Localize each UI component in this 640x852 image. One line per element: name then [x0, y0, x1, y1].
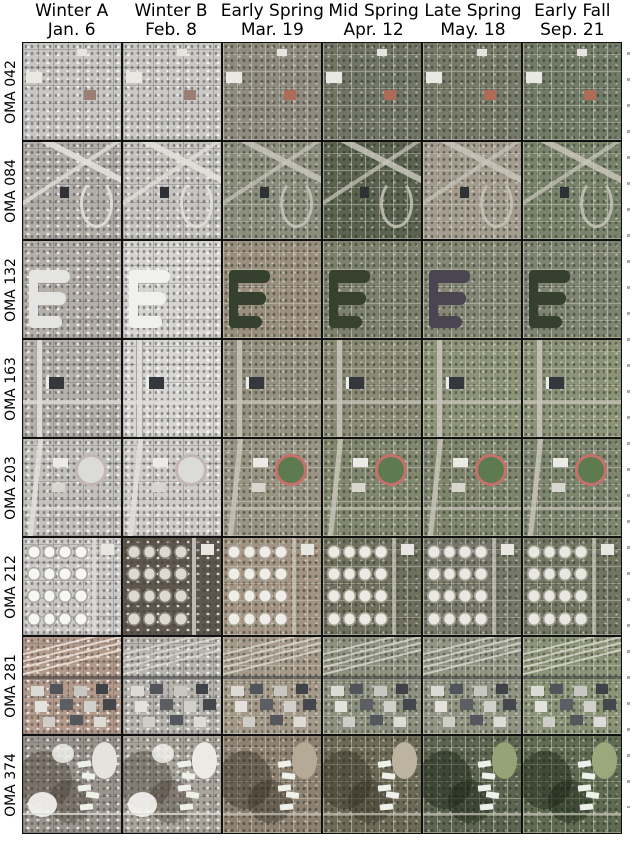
- apartment-building: [577, 760, 590, 768]
- storage-tank: [127, 589, 141, 603]
- storage-tank: [474, 545, 488, 559]
- row-label-cell: OMA 084: [0, 141, 22, 240]
- satellite-tile: [22, 339, 122, 438]
- row-label-cell: OMA 203: [0, 438, 22, 537]
- column-header: Early Fall Sep. 21: [523, 2, 622, 40]
- apartment-building: [478, 784, 491, 792]
- ramp-curve: [380, 179, 413, 228]
- storage-tank: [343, 612, 357, 626]
- red-roof-building: [584, 90, 596, 101]
- storage-tank: [443, 567, 457, 581]
- running-track: [175, 454, 207, 486]
- satellite-tile: [422, 636, 522, 735]
- dark-building: [149, 377, 164, 390]
- industrial-building: [550, 684, 563, 695]
- ramp-curve: [580, 179, 613, 228]
- industrial-building: [435, 701, 448, 712]
- industrial-building: [343, 717, 356, 728]
- industrial-building: [31, 686, 44, 697]
- storage-tank: [527, 589, 541, 603]
- row-label: OMA 374: [3, 753, 19, 817]
- white-building: [277, 49, 287, 56]
- storage-tank: [227, 545, 241, 559]
- cross-road: [323, 676, 421, 679]
- industrial-building: [594, 717, 607, 728]
- highway-road: [436, 340, 443, 437]
- row-label-cell: OMA 132: [0, 240, 22, 339]
- season-label: Early Spring: [221, 2, 324, 21]
- storage-tank: [74, 545, 88, 559]
- school-building: [152, 483, 165, 493]
- industrial-building: [374, 686, 387, 697]
- apartment-building: [78, 784, 91, 792]
- cross-road: [523, 507, 621, 510]
- highway-road: [36, 340, 43, 437]
- cross-road: [123, 676, 221, 679]
- date-label: May. 18: [423, 21, 522, 40]
- satellite-tile: [322, 42, 422, 141]
- white-building: [26, 72, 42, 83]
- storage-tank: [243, 567, 257, 581]
- storage-tank: [274, 589, 288, 603]
- industrial-building: [496, 684, 509, 695]
- storage-tank: [227, 589, 241, 603]
- right-margin-marks: [627, 52, 630, 808]
- storage-tank: [343, 589, 357, 603]
- industrial-building: [596, 684, 609, 695]
- storage-tank: [158, 545, 172, 559]
- clearing-oval: [592, 742, 617, 779]
- tile-grid: [22, 42, 622, 834]
- clearing-oval: [492, 742, 517, 779]
- white-building: [301, 544, 314, 556]
- clearing-oval: [192, 742, 217, 779]
- school-building: [252, 483, 265, 493]
- satellite-tile: [22, 42, 122, 141]
- industrial-building: [203, 699, 216, 710]
- cross-road: [423, 507, 521, 510]
- apartment-building: [282, 772, 295, 780]
- satellite-tile: [222, 636, 322, 735]
- storage-tank: [543, 612, 557, 626]
- satellite-tile: [522, 240, 622, 339]
- storage-tank: [574, 589, 588, 603]
- industrial-building: [535, 701, 548, 712]
- white-building: [426, 72, 442, 83]
- row-label-cell: OMA 281: [0, 636, 22, 735]
- date-label: Sep. 21: [523, 21, 622, 40]
- industrial-building: [431, 686, 444, 697]
- industrial-building: [294, 717, 307, 728]
- satellite-tile: [322, 339, 422, 438]
- apartment-building: [280, 803, 293, 810]
- storage-tank: [227, 612, 241, 626]
- industrial-building: [96, 684, 109, 695]
- storage-tank: [558, 567, 572, 581]
- school-building: [352, 483, 365, 493]
- storage-tank: [143, 612, 157, 626]
- satellite-tile: [22, 438, 122, 537]
- lake-finger: [129, 292, 166, 305]
- storage-tank: [174, 612, 188, 626]
- storage-tank: [458, 567, 472, 581]
- industrial-building: [260, 699, 273, 710]
- satellite-tile: [522, 141, 622, 240]
- satellite-tile: [22, 240, 122, 339]
- storage-tank: [458, 545, 472, 559]
- red-roof-building: [484, 90, 496, 101]
- row-label-cell: OMA 163: [0, 339, 22, 438]
- storage-tank: [27, 612, 41, 626]
- cross-road: [23, 813, 121, 815]
- highway-road: [136, 340, 143, 437]
- industrial-building: [331, 686, 344, 697]
- dark-building: [160, 187, 169, 199]
- industrial-building: [443, 717, 456, 728]
- row-label-cell: OMA 042: [0, 42, 22, 141]
- lake-finger: [429, 292, 466, 305]
- white-building: [177, 49, 187, 56]
- access-road: [292, 538, 296, 635]
- satellite-tile: [422, 735, 522, 834]
- storage-tank: [243, 612, 257, 626]
- apartment-building: [580, 803, 593, 810]
- storage-tank: [58, 545, 72, 559]
- storage-tank: [274, 545, 288, 559]
- industrial-building: [43, 717, 56, 728]
- storage-tank: [27, 567, 41, 581]
- satellite-tile: [222, 339, 322, 438]
- storage-tank: [127, 567, 141, 581]
- lake-finger: [29, 270, 70, 283]
- highway-road: [236, 340, 243, 437]
- running-track: [75, 454, 107, 486]
- red-roof-building: [84, 90, 96, 101]
- storage-tank: [558, 589, 572, 603]
- row-labels: OMA 042 OMA 084 OMA 132 OMA 163 OMA 203 …: [0, 42, 22, 834]
- lake-finger: [529, 292, 566, 305]
- red-roof-building: [384, 90, 396, 101]
- industrial-building: [570, 715, 583, 726]
- storage-tank: [474, 589, 488, 603]
- industrial-building: [243, 717, 256, 728]
- industrial-building: [484, 701, 497, 712]
- lake-finger: [129, 270, 170, 283]
- white-building: [453, 458, 468, 467]
- satellite-tile: [22, 636, 122, 735]
- cross-road: [23, 507, 121, 510]
- storage-tank: [327, 589, 341, 603]
- access-road: [92, 538, 96, 635]
- satellite-tile: [322, 438, 422, 537]
- apartment-building: [377, 760, 390, 768]
- white-building: [501, 544, 514, 556]
- storage-tank: [74, 612, 88, 626]
- apartment-building: [178, 784, 191, 792]
- storage-tank: [174, 545, 188, 559]
- storage-tank: [527, 567, 541, 581]
- industrial-building: [560, 699, 573, 710]
- industrial-building: [574, 686, 587, 697]
- storage-tank: [58, 612, 72, 626]
- industrial-building: [60, 699, 73, 710]
- satellite-tile: [522, 438, 622, 537]
- storage-tank: [474, 612, 488, 626]
- clearing-oval: [292, 742, 317, 779]
- storage-tank: [243, 545, 257, 559]
- satellite-tile: [222, 141, 322, 240]
- ramp-curve: [480, 179, 513, 228]
- date-label: Jan. 6: [22, 21, 121, 40]
- industrial-building: [474, 686, 487, 697]
- apartment-building: [578, 784, 591, 792]
- satellite-tile: [122, 438, 222, 537]
- highway-road: [327, 438, 344, 537]
- apartment-building: [482, 772, 495, 780]
- apartment-building: [80, 803, 93, 810]
- satellite-tile: [422, 438, 522, 537]
- storage-tank: [358, 545, 372, 559]
- storage-tank: [374, 567, 388, 581]
- industrial-building: [194, 717, 207, 728]
- industrial-building: [170, 715, 183, 726]
- running-track: [375, 454, 407, 486]
- storage-tank: [143, 567, 157, 581]
- clearing-oval: [392, 742, 417, 779]
- cross-road: [523, 813, 621, 815]
- storage-tank: [427, 567, 441, 581]
- cross-road: [323, 507, 421, 510]
- season-label: Winter B: [121, 2, 220, 21]
- industrial-building: [84, 701, 97, 712]
- satellite-tile: [522, 636, 622, 735]
- industrial-building: [531, 686, 544, 697]
- apartment-building: [378, 784, 391, 792]
- industrial-building: [543, 717, 556, 728]
- lake-finger: [329, 270, 370, 283]
- storage-tank: [458, 612, 472, 626]
- row-label: OMA 212: [3, 555, 19, 619]
- storage-tank: [143, 589, 157, 603]
- white-building: [326, 72, 342, 83]
- satellite-tile: [522, 339, 622, 438]
- access-road: [192, 538, 196, 635]
- industrial-building: [160, 699, 173, 710]
- dark-building: [349, 377, 364, 390]
- storage-tank: [527, 612, 541, 626]
- clearing-oval: [92, 742, 117, 779]
- satellite-tile: [322, 141, 422, 240]
- row-label: OMA 084: [3, 159, 19, 223]
- industrial-building: [284, 701, 297, 712]
- industrial-building: [103, 699, 116, 710]
- industrial-building: [384, 701, 397, 712]
- apartment-building: [182, 772, 195, 780]
- storage-tank: [427, 589, 441, 603]
- industrial-building: [231, 686, 244, 697]
- lake-finger: [229, 270, 270, 283]
- satellite-tile: [122, 240, 222, 339]
- industrial-building: [503, 699, 516, 710]
- storage-tank: [174, 567, 188, 581]
- apartment-building: [180, 803, 193, 810]
- white-building: [401, 544, 414, 556]
- storage-tank: [443, 545, 457, 559]
- white-building: [553, 458, 568, 467]
- storage-tank: [543, 567, 557, 581]
- date-label: Mar. 19: [221, 21, 324, 40]
- dark-building: [60, 187, 69, 199]
- industrial-building: [303, 699, 316, 710]
- lake-finger: [329, 292, 366, 305]
- apartment-building: [177, 760, 190, 768]
- satellite-tile: [22, 141, 122, 240]
- storage-tank: [43, 567, 57, 581]
- storage-tank: [327, 612, 341, 626]
- white-building: [77, 49, 87, 56]
- season-label: Late Spring: [423, 2, 522, 21]
- storage-tank: [158, 567, 172, 581]
- lake-finger: [29, 292, 66, 305]
- season-label: Mid Spring: [324, 2, 423, 21]
- satellite-tile: [122, 339, 222, 438]
- column-header: Early Spring Mar. 19: [221, 2, 324, 40]
- apartment-building: [278, 784, 291, 792]
- satellite-tile: [322, 537, 422, 636]
- apartment-building: [582, 772, 595, 780]
- storage-tank: [327, 567, 341, 581]
- highway-road: [536, 340, 543, 437]
- industrial-building: [270, 715, 283, 726]
- storage-tank: [127, 545, 141, 559]
- satellite-tile: [422, 141, 522, 240]
- industrial-building: [603, 699, 616, 710]
- cross-road: [123, 400, 221, 403]
- row-label: OMA 203: [3, 456, 19, 520]
- storage-tank: [43, 589, 57, 603]
- industrial-building: [403, 699, 416, 710]
- lake-finger: [229, 292, 266, 305]
- satellite-tile: [422, 240, 522, 339]
- storage-tank: [443, 589, 457, 603]
- column-header: Winter B Feb. 8: [121, 2, 220, 40]
- cross-road: [323, 813, 421, 815]
- storage-tank: [558, 545, 572, 559]
- white-building: [201, 544, 214, 556]
- industrial-building: [584, 701, 597, 712]
- highway-road: [336, 340, 343, 437]
- lake-finger: [529, 316, 562, 329]
- industrial-building: [174, 686, 187, 697]
- storage-tank: [158, 589, 172, 603]
- apartment-building: [382, 772, 395, 780]
- storage-tank: [327, 545, 341, 559]
- cross-road: [423, 400, 521, 403]
- dark-building: [49, 377, 64, 390]
- lake-finger: [129, 316, 162, 329]
- satellite-tile: [522, 42, 622, 141]
- storage-tank: [74, 589, 88, 603]
- satellite-tile: [522, 735, 622, 834]
- storage-tank: [374, 545, 388, 559]
- satellite-tile: [422, 42, 522, 141]
- white-building: [253, 458, 268, 467]
- satellite-tile: [22, 735, 122, 834]
- storage-tank: [43, 545, 57, 559]
- storage-tank: [274, 567, 288, 581]
- storage-tank: [474, 567, 488, 581]
- industrial-building: [274, 686, 287, 697]
- lake-finger: [229, 316, 262, 329]
- storage-tank: [443, 612, 457, 626]
- dark-building: [260, 187, 269, 199]
- white-building: [526, 72, 542, 83]
- dark-building: [549, 377, 564, 390]
- apartment-building: [77, 760, 90, 768]
- industrial-building: [450, 684, 463, 695]
- white-building: [577, 49, 587, 56]
- apartment-building: [480, 803, 493, 810]
- dark-building: [449, 377, 464, 390]
- industrial-building: [350, 684, 363, 695]
- highway-road: [227, 438, 244, 537]
- snow-patch: [52, 744, 74, 763]
- satellite-tile: [522, 537, 622, 636]
- satellite-tile: [22, 537, 122, 636]
- ramp-curve: [280, 179, 313, 228]
- lake-finger: [429, 316, 462, 329]
- lake-finger: [29, 316, 62, 329]
- white-building: [477, 49, 487, 56]
- industrial-building: [70, 715, 83, 726]
- storage-tank: [527, 545, 541, 559]
- storage-tank: [174, 589, 188, 603]
- cross-road: [223, 676, 321, 679]
- access-road: [592, 538, 596, 635]
- storage-tank: [427, 612, 441, 626]
- satellite-tile: [222, 537, 322, 636]
- industrial-building: [396, 684, 409, 695]
- lake-finger: [529, 270, 570, 283]
- cross-road: [223, 507, 321, 510]
- storage-tank: [158, 612, 172, 626]
- satellite-tile: [122, 537, 222, 636]
- apartment-building: [82, 772, 95, 780]
- lake-finger: [429, 270, 470, 283]
- industrial-building: [74, 686, 87, 697]
- red-roof-building: [284, 90, 296, 101]
- industrial-building: [184, 701, 197, 712]
- highway-road: [127, 438, 144, 537]
- storage-tank: [27, 545, 41, 559]
- industrial-building: [50, 684, 63, 695]
- storage-tank: [343, 567, 357, 581]
- industrial-building: [250, 684, 263, 695]
- satellite-tile: [122, 636, 222, 735]
- satellite-tile: [122, 42, 222, 141]
- industrial-building: [460, 699, 473, 710]
- white-building: [53, 458, 68, 467]
- running-track: [575, 454, 607, 486]
- industrial-building: [360, 699, 373, 710]
- storage-tank: [258, 589, 272, 603]
- storage-tank: [358, 612, 372, 626]
- satellite-tile: [222, 438, 322, 537]
- satellite-tile: [222, 42, 322, 141]
- row-label-cell: OMA 374: [0, 735, 22, 834]
- cross-road: [23, 676, 121, 679]
- industrial-building: [150, 684, 163, 695]
